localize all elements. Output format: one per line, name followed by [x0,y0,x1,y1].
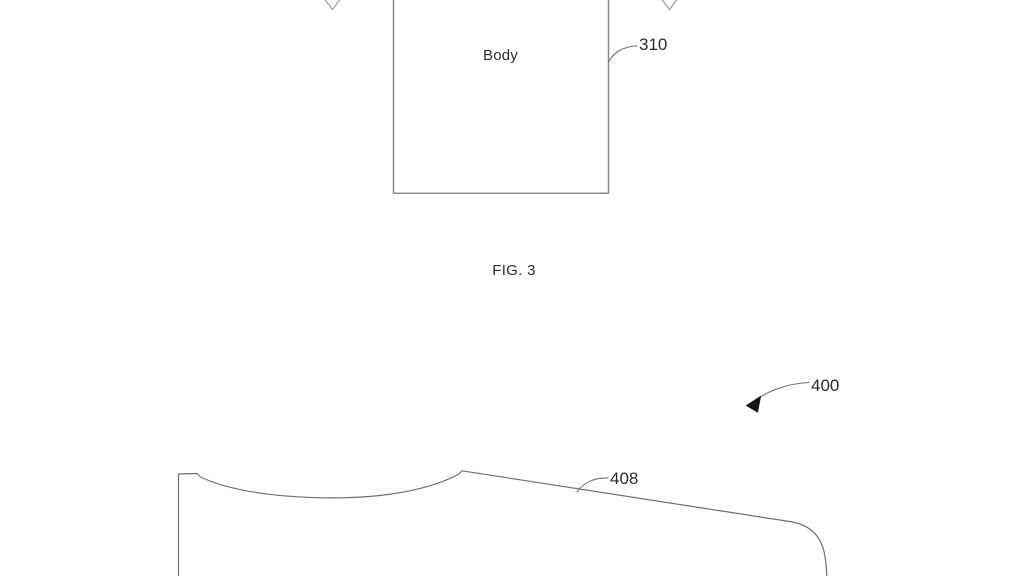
down-arrowhead-right-icon [662,0,677,10]
patent-figure-page: Body 310 FIG. 3 400 408 [0,0,1024,576]
ref-310-label: 310 [639,35,667,55]
down-arrowhead-left-icon [325,0,340,10]
sole-outline [179,471,827,576]
body-box-outline [394,0,609,193]
ref-400-arrowhead-icon [747,397,761,413]
ref-310-leader-line [609,46,638,62]
ref-408-label: 408 [610,469,638,489]
ref-400-leader-line [756,383,809,401]
ref-400-label: 400 [811,376,839,396]
fig3-caption: FIG. 3 [444,261,584,281]
body-box-label: Body [393,46,608,66]
patent-line-art [0,0,1024,576]
